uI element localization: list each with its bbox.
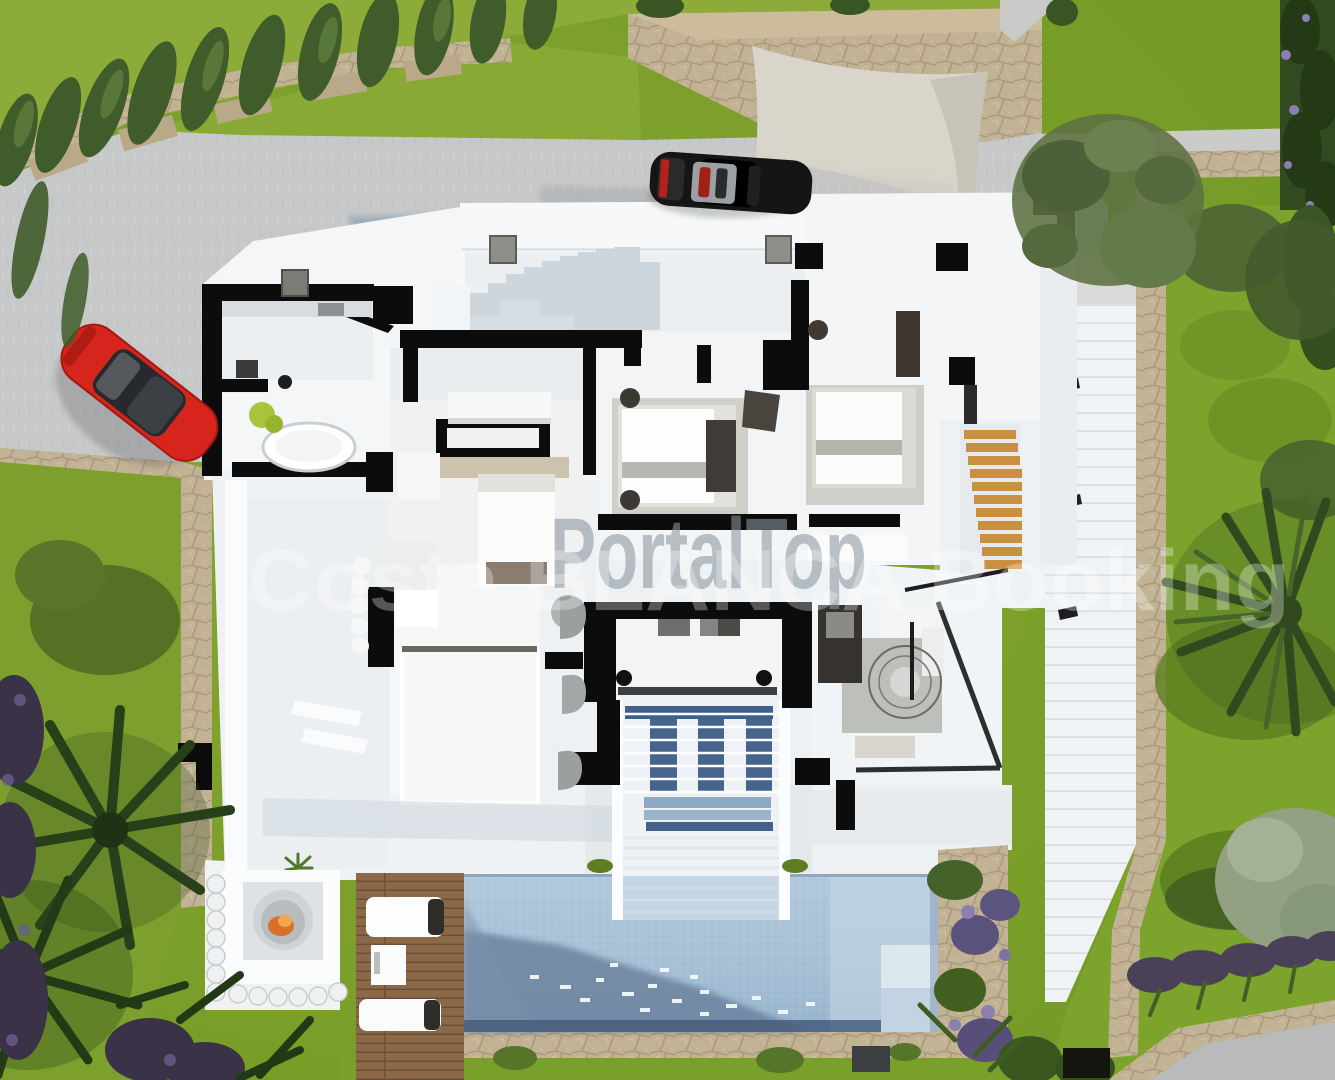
svg-text:Costa BLANCA Booking: Costa BLANCA Booking xyxy=(248,533,1290,629)
